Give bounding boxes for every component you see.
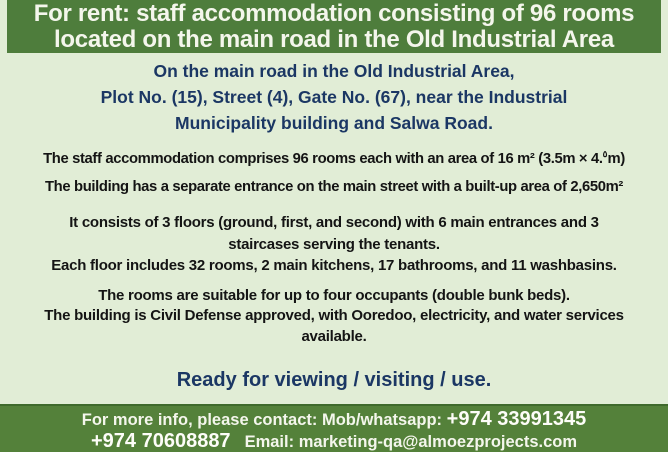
location-line3: Municipality building and Salwa Road.: [0, 110, 668, 136]
location-line2: Plot No. (15), Street (4), Gate No. (67)…: [0, 84, 668, 110]
contact-line2: +974 70608887Email: marketing-qa@almoezp…: [0, 431, 668, 452]
contact-footer: For more info, please contact: Mob/whats…: [0, 404, 668, 452]
location-line1: On the main road in the Old Industrial A…: [0, 58, 668, 84]
room-area-line: The staff accommodation comprises 96 roo…: [0, 145, 668, 173]
occupancy-section: The rooms are suitable for up to four oc…: [0, 286, 668, 348]
contact-phone1: +974 33991345: [447, 408, 587, 430]
entrance-line: The building has a separate entrance on …: [0, 173, 668, 201]
floors-line3: Each floor includes 32 rooms, 2 main kit…: [0, 255, 668, 277]
location-section: On the main road in the Old Industrial A…: [0, 58, 668, 136]
occupancy-line1: The rooms are suitable for up to four oc…: [0, 286, 668, 307]
floors-line1: It consists of 3 floors (ground, first, …: [0, 212, 668, 234]
contact-phone2: +974 70608887: [91, 430, 231, 452]
contact-intro: For more info, please contact: Mob/whats…: [82, 411, 442, 429]
header-title-line1: For rent: staff accommodation consisting…: [7, 1, 661, 27]
occupancy-line2: The building is Civil Defense approved, …: [0, 306, 668, 327]
floors-line2: staircases serving the tenants.: [0, 234, 668, 256]
occupancy-line3: available.: [0, 327, 668, 348]
room-area-post: m): [608, 151, 625, 167]
email-address: marketing-qa@almoezprojects.com: [299, 433, 577, 451]
rental-flyer: For rent: staff accommodation consisting…: [0, 0, 668, 452]
ready-statement: Ready for viewing / visiting / use.: [0, 368, 668, 392]
floors-section: It consists of 3 floors (ground, first, …: [0, 212, 668, 277]
contact-line1: For more info, please contact: Mob/whats…: [0, 409, 668, 431]
header-title-line2: located on the main road in the Old Indu…: [7, 27, 661, 53]
specs-section: The staff accommodation comprises 96 roo…: [0, 145, 668, 201]
email-label: Email:: [245, 433, 295, 451]
room-area-pre: The staff accommodation comprises 96 roo…: [43, 151, 603, 167]
header-banner: For rent: staff accommodation consisting…: [7, 0, 661, 53]
